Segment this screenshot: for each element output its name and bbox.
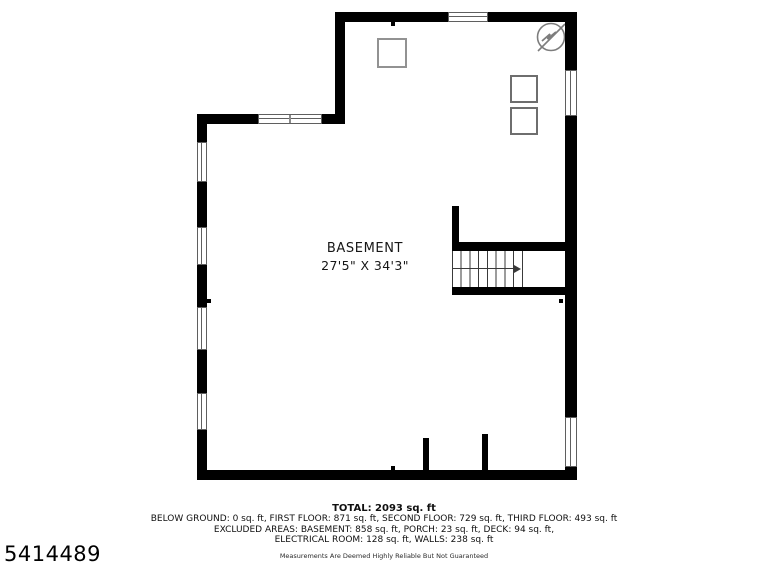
fixture-square-2	[510, 75, 538, 103]
wall-marker-dot-right	[559, 299, 563, 303]
fixture-square-3	[510, 107, 538, 135]
window-right-2	[565, 417, 577, 467]
window-left-1	[197, 142, 207, 182]
room-name: BASEMENT	[255, 241, 475, 256]
wall-marker-dot-bottom	[391, 466, 395, 470]
excluded-areas-line2: ELECTRICAL ROOM: 128 sq. ft, WALLS: 238 …	[0, 535, 768, 546]
floor-plan-canvas: BASEMENT 27'5" X 34'3" TOTAL: 2093 sq. f…	[0, 0, 768, 576]
listing-id: 5414489	[4, 542, 101, 566]
window-left-3	[197, 307, 207, 350]
window-left-2	[197, 227, 207, 265]
wall-upper-room-left	[335, 12, 345, 124]
room-dimensions: 27'5" X 34'3"	[255, 258, 475, 273]
disclaimer: Measurements Are Deemed Highly Reliable …	[0, 552, 768, 560]
floor-areas: BELOW GROUND: 0 sq. ft, FIRST FLOOR: 871…	[0, 514, 768, 525]
wall-stub-bottom-2	[482, 434, 488, 470]
fixture-square-1	[377, 38, 407, 68]
wall-stub-bottom-1	[423, 438, 429, 470]
wall-stair-bottom	[452, 287, 565, 295]
window-top	[448, 12, 488, 22]
room-label-group: BASEMENT 27'5" X 34'3"	[255, 241, 475, 273]
stair-direction-arrowhead	[514, 265, 521, 273]
wall-bottom	[197, 470, 577, 480]
wall-marker-dot-left	[207, 299, 211, 303]
wall-marker-dot-top	[391, 22, 395, 26]
window-left-4	[197, 393, 207, 430]
window-upper-left	[258, 114, 322, 124]
excluded-areas-line1: EXCLUDED AREAS: BASEMENT: 858 sq. ft, PO…	[0, 525, 768, 536]
electrical-symbol-icon	[534, 20, 568, 54]
total-area: TOTAL: 2093 sq. ft	[0, 503, 768, 514]
area-summary: TOTAL: 2093 sq. ft BELOW GROUND: 0 sq. f…	[0, 503, 768, 560]
window-right-1	[565, 70, 577, 116]
